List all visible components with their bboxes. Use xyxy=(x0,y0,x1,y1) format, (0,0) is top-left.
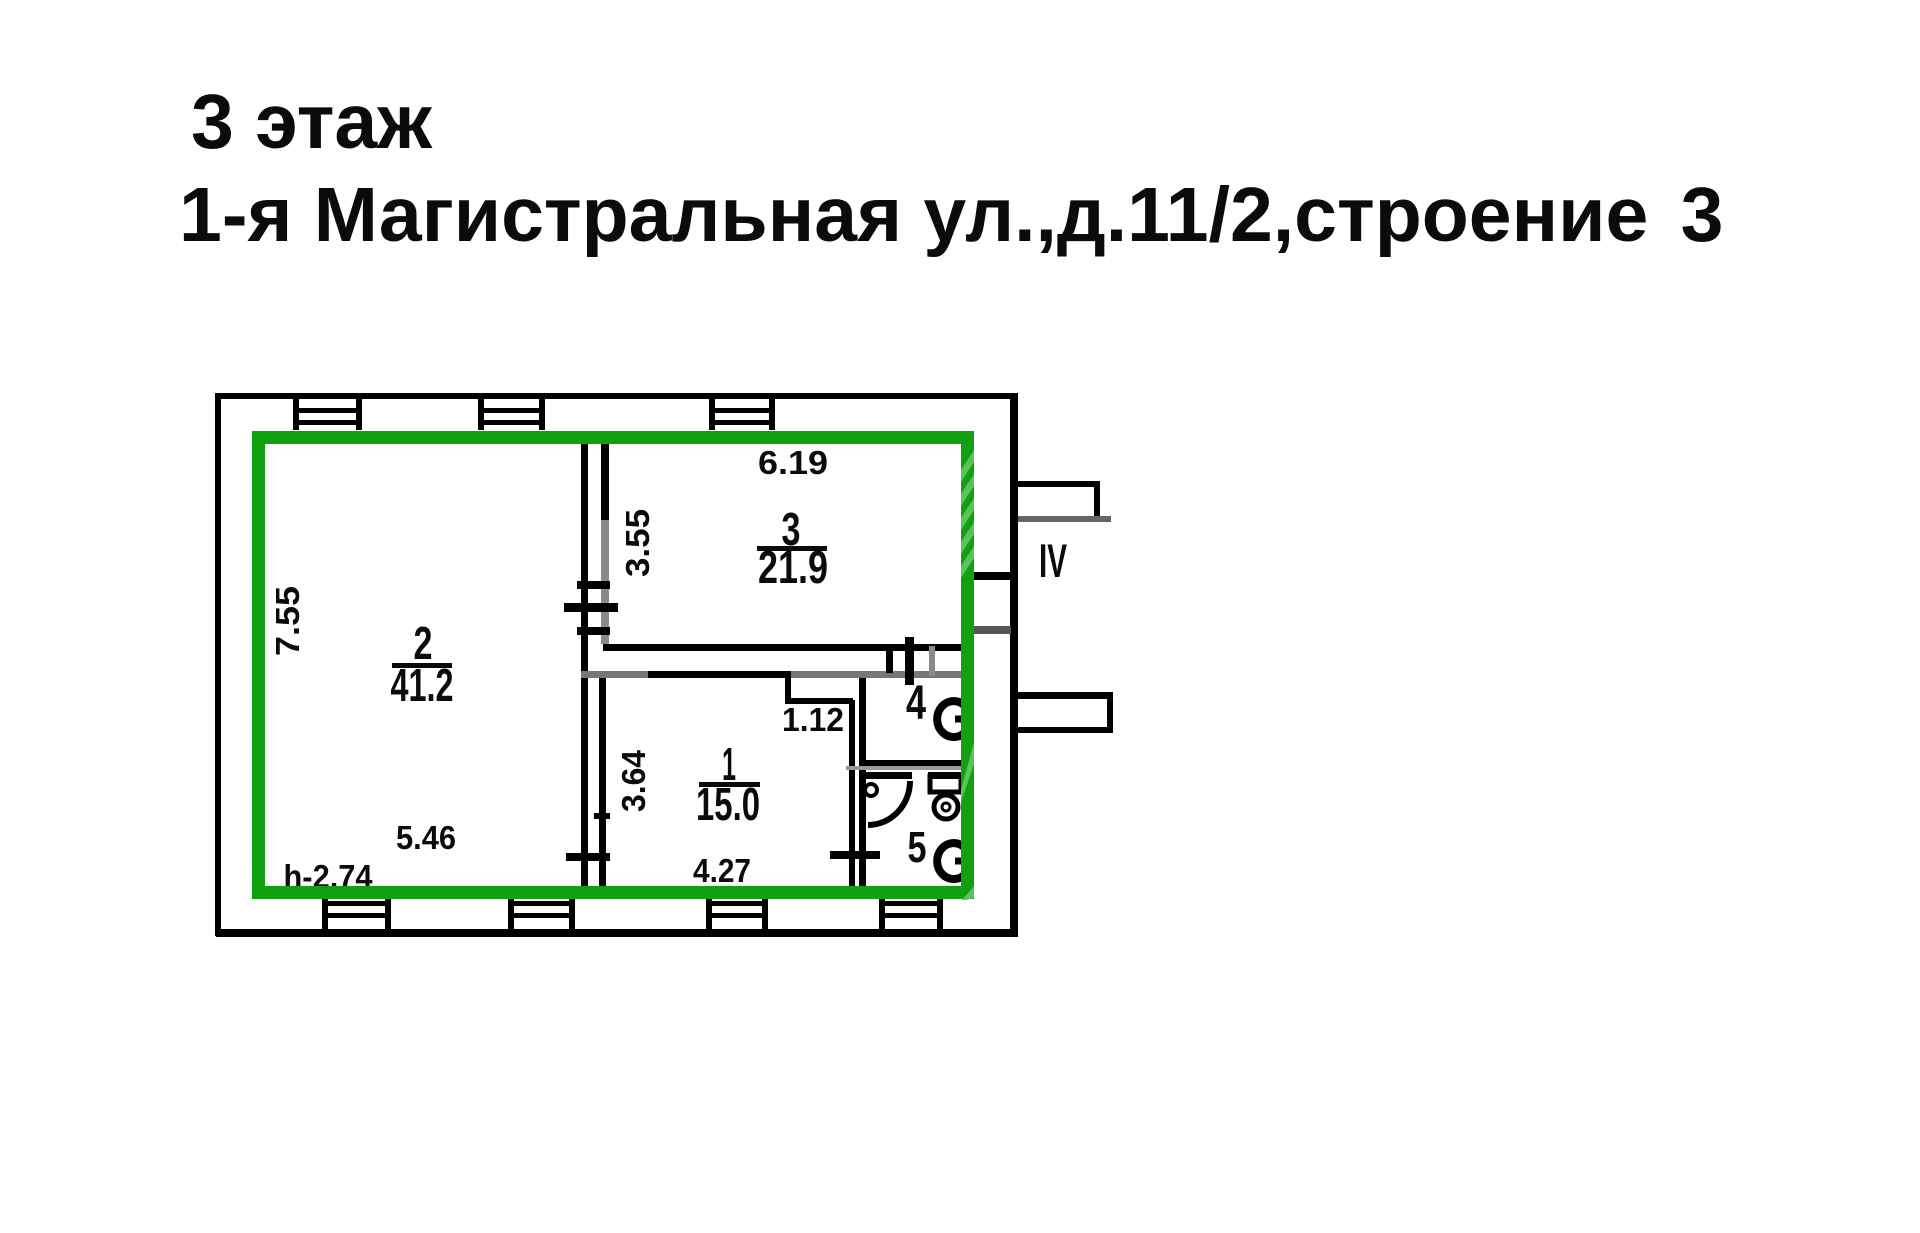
svg-text:21.9: 21.9 xyxy=(758,541,828,593)
svg-text:IV: IV xyxy=(1039,534,1067,587)
svg-text:7.55: 7.55 xyxy=(269,586,306,656)
svg-text:4: 4 xyxy=(906,677,926,730)
svg-text:1.12: 1.12 xyxy=(782,701,844,738)
svg-text:15.0: 15.0 xyxy=(696,778,760,830)
svg-text:4.27: 4.27 xyxy=(693,852,751,889)
svg-text:5.46: 5.46 xyxy=(396,819,456,856)
svg-text:41.2: 41.2 xyxy=(391,659,454,711)
svg-text:1-я Магистральная ул.,д.11/2,с: 1-я Магистральная ул.,д.11/2,строение 3 xyxy=(179,172,1724,258)
svg-text:3 этаж: 3 этаж xyxy=(191,79,433,165)
svg-text:5: 5 xyxy=(908,823,927,872)
svg-text:6.19: 6.19 xyxy=(758,444,828,481)
svg-text:3.64: 3.64 xyxy=(615,749,652,812)
svg-text:3.55: 3.55 xyxy=(619,509,656,577)
